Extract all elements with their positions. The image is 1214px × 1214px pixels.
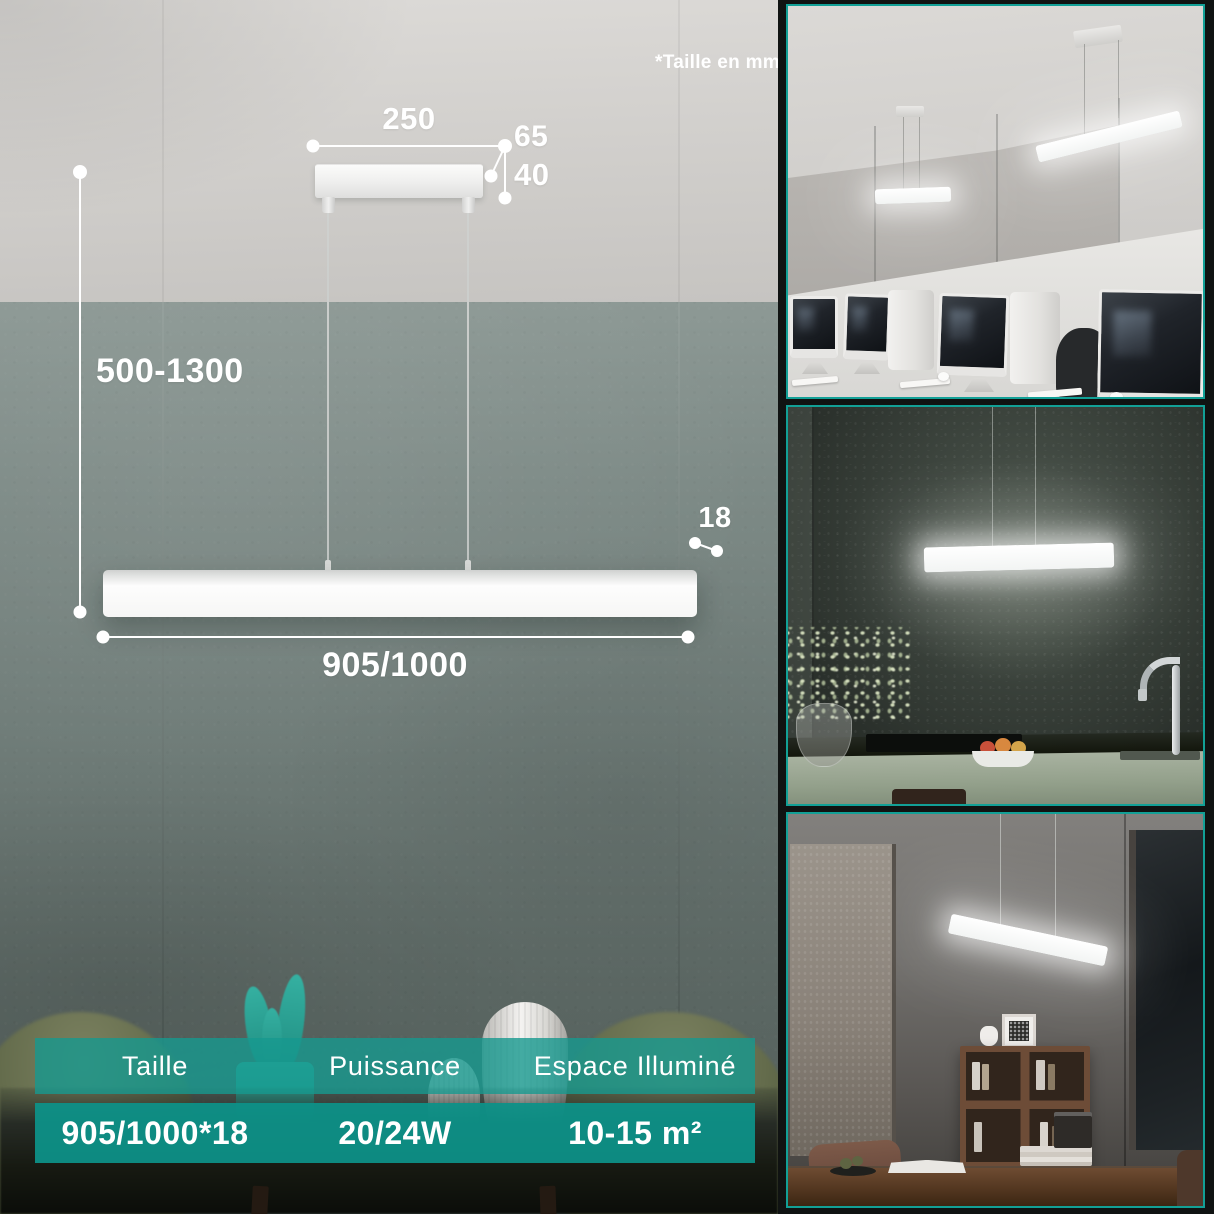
imac-back bbox=[888, 290, 934, 370]
dim-canopy-width: 250 bbox=[313, 101, 505, 137]
spec-table-header-row: Taille Puissance Espace Illuminé bbox=[35, 1038, 755, 1094]
faucet-spout bbox=[1138, 689, 1147, 701]
dining-scene-photo bbox=[786, 812, 1205, 1208]
window bbox=[1129, 830, 1205, 1150]
frame-artwork bbox=[1009, 1021, 1029, 1041]
pendant-lamp-bar bbox=[924, 543, 1115, 573]
dim-suspension-height: 500-1300 bbox=[96, 352, 244, 391]
lifestyle-photo-column bbox=[778, 0, 1214, 1214]
book-stack bbox=[1020, 1146, 1092, 1166]
chair-corner-silhouette bbox=[1177, 1150, 1205, 1208]
dim-canopy-height: 40 bbox=[514, 157, 549, 193]
dimension-diagram-panel: *Taille en mm 250 65 40 500-1300 18 905/… bbox=[0, 0, 778, 1214]
lamp-wire bbox=[1118, 40, 1119, 118]
lamp-wall-glow bbox=[868, 457, 1168, 687]
dim-bar-length: 905/1000 bbox=[285, 646, 505, 685]
lamp-canopy bbox=[896, 106, 924, 117]
book bbox=[1036, 1060, 1045, 1090]
dim-canopy-depth: 65 bbox=[514, 120, 548, 154]
product-infographic: *Taille en mm 250 65 40 500-1300 18 905/… bbox=[0, 0, 1214, 1214]
kitchen-scene-photo bbox=[786, 405, 1205, 806]
book bbox=[974, 1122, 982, 1152]
spec-value-taille: 905/1000*18 bbox=[35, 1103, 275, 1163]
flower-sprigs bbox=[786, 627, 910, 719]
lamp-wire bbox=[903, 117, 904, 189]
cup bbox=[1110, 392, 1123, 399]
sink bbox=[1120, 751, 1200, 760]
spec-value-espace: 10-15 m² bbox=[515, 1103, 755, 1163]
lamp-wire bbox=[992, 407, 993, 549]
wall-corner bbox=[1124, 814, 1126, 1166]
dimension-lines bbox=[0, 0, 778, 1214]
shelf-picture-frame bbox=[1002, 1014, 1036, 1048]
fruit bbox=[852, 1156, 863, 1166]
spec-table-value-row: 905/1000*18 20/24W 10-15 m² bbox=[35, 1103, 755, 1163]
book bbox=[982, 1064, 989, 1090]
textured-wall-panel bbox=[790, 844, 896, 1156]
imac-computer bbox=[790, 296, 838, 358]
book bbox=[1048, 1064, 1055, 1090]
chair-back-silhouette bbox=[892, 789, 966, 806]
plate bbox=[830, 1166, 876, 1176]
screen-reflection bbox=[948, 309, 973, 342]
standing-book bbox=[1054, 1112, 1092, 1148]
size-unit-note: *Taille en mm bbox=[640, 52, 778, 74]
spec-header-espace: Espace Illuminé bbox=[515, 1038, 755, 1094]
fruit bbox=[840, 1158, 852, 1169]
imac-computer bbox=[843, 293, 891, 361]
lamp-wire bbox=[1035, 407, 1036, 545]
spec-header-taille: Taille bbox=[35, 1038, 275, 1094]
fruit-bowl bbox=[972, 751, 1034, 767]
spec-value-puissance: 20/24W bbox=[275, 1103, 515, 1163]
spec-header-puissance: Puissance bbox=[275, 1038, 515, 1094]
screen-reflection bbox=[1113, 310, 1152, 357]
screen-reflection bbox=[852, 306, 868, 331]
cup bbox=[938, 372, 949, 381]
lamp-wire bbox=[919, 117, 920, 189]
lamp-wire bbox=[1000, 814, 1001, 936]
lamp-wire bbox=[1084, 44, 1085, 148]
pendant-lamp-bar bbox=[875, 187, 951, 205]
lamp-wire bbox=[1055, 814, 1056, 952]
imac-back bbox=[1010, 292, 1060, 384]
imac-computer bbox=[1097, 289, 1205, 399]
faucet-pipe bbox=[1172, 665, 1180, 755]
small-vase bbox=[980, 1026, 998, 1046]
screen-reflection bbox=[798, 308, 814, 331]
dim-bar-thickness: 18 bbox=[688, 502, 742, 535]
imac-computer bbox=[937, 293, 1010, 377]
office-scene-photo bbox=[786, 4, 1205, 399]
book bbox=[972, 1062, 980, 1090]
